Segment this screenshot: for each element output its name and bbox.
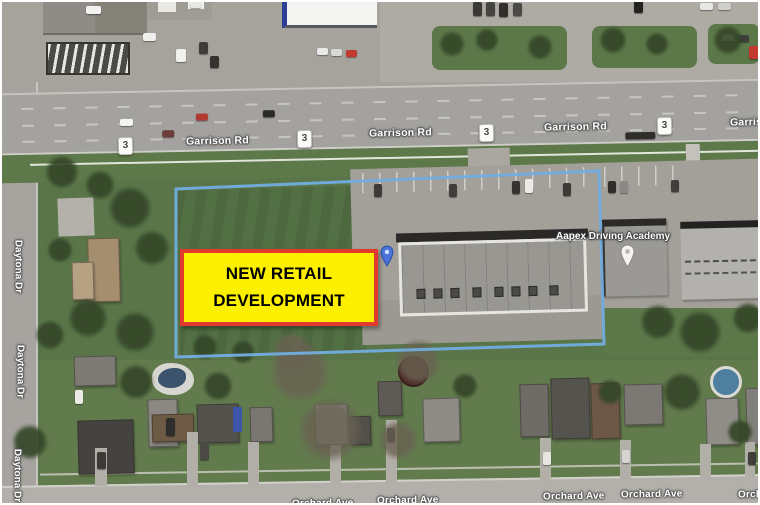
driveway bbox=[700, 444, 711, 478]
car bbox=[317, 48, 328, 55]
car bbox=[346, 50, 357, 57]
daytona-dr-label: Daytona Dr bbox=[12, 446, 23, 505]
house-roof bbox=[72, 262, 95, 301]
car bbox=[162, 130, 174, 137]
pool-water bbox=[158, 368, 186, 388]
garrison-rd-label: Garrison Rd bbox=[186, 134, 249, 147]
car bbox=[608, 181, 616, 193]
rooftop-unit bbox=[528, 286, 537, 296]
tree bbox=[727, 419, 753, 445]
building-roof bbox=[95, 0, 147, 33]
car bbox=[75, 390, 83, 404]
car bbox=[199, 42, 208, 54]
house-roof bbox=[250, 407, 274, 443]
car bbox=[210, 56, 219, 68]
tree bbox=[68, 298, 108, 338]
car bbox=[263, 110, 275, 117]
tree bbox=[134, 230, 170, 266]
house-roof bbox=[422, 398, 460, 443]
tree bbox=[645, 32, 669, 56]
car bbox=[143, 33, 156, 41]
tree-bare bbox=[272, 332, 312, 372]
house-roof bbox=[74, 355, 117, 386]
lane-marking bbox=[0, 111, 760, 128]
tree bbox=[114, 311, 156, 353]
orchard-ave-label: Orchard Ave bbox=[292, 498, 354, 505]
pool-round bbox=[710, 366, 742, 398]
tree bbox=[452, 373, 478, 399]
building-roof-surface bbox=[398, 238, 588, 317]
car bbox=[563, 183, 571, 196]
house-roof bbox=[519, 384, 549, 438]
car bbox=[86, 6, 101, 14]
orchard-ave-label: Orchard Ave bbox=[377, 495, 439, 505]
tree-bare bbox=[297, 397, 363, 463]
car bbox=[190, 1, 201, 8]
rooftop-unit bbox=[494, 287, 503, 297]
sidewalk-line bbox=[40, 462, 760, 475]
tree bbox=[640, 304, 676, 340]
car bbox=[331, 49, 342, 56]
tree bbox=[475, 28, 499, 52]
tree bbox=[118, 364, 154, 400]
tree-bare bbox=[395, 339, 441, 385]
car bbox=[200, 444, 209, 460]
new-retail-development-box: NEW RETAIL DEVELOPMENT bbox=[180, 249, 378, 326]
building-east-roof bbox=[680, 220, 760, 300]
car bbox=[97, 452, 106, 469]
building-roof-blue-trim bbox=[282, 0, 377, 28]
car bbox=[748, 452, 756, 465]
car bbox=[700, 3, 713, 10]
tree bbox=[192, 334, 218, 360]
truck bbox=[625, 132, 655, 140]
rooftop-unit bbox=[450, 288, 459, 298]
car bbox=[499, 3, 508, 17]
orchard-ave-label: Orchard Ave bbox=[543, 491, 605, 503]
roof-seam bbox=[685, 271, 756, 274]
bus-canopy-roof bbox=[46, 42, 130, 75]
tree bbox=[45, 155, 79, 189]
car bbox=[120, 119, 133, 126]
garrison-rd-label: Garrison Rd bbox=[730, 115, 760, 128]
house-roof bbox=[550, 378, 591, 440]
route-3-shield: 3 bbox=[479, 124, 494, 142]
car bbox=[718, 3, 731, 10]
car bbox=[196, 113, 208, 120]
route-3-shield: 3 bbox=[118, 137, 133, 155]
pool-deck bbox=[152, 363, 194, 395]
tree bbox=[35, 320, 65, 350]
car bbox=[176, 49, 186, 62]
tree bbox=[108, 186, 152, 230]
roof-seam bbox=[685, 259, 756, 262]
orchard-ave-label: Orchard Ave bbox=[738, 489, 760, 501]
daytona-dr-label: Daytona Dr bbox=[15, 342, 26, 402]
car bbox=[512, 181, 520, 194]
rooftop-unit bbox=[511, 286, 520, 296]
rooftop-unit bbox=[433, 288, 442, 298]
satellite-map: Garrison Rd Garrison Rd Garrison Rd Garr… bbox=[0, 0, 760, 505]
annotation-line2: DEVELOPMENT bbox=[213, 291, 345, 311]
route-3-shield: 3 bbox=[657, 117, 672, 135]
house-roof bbox=[623, 383, 663, 425]
car bbox=[671, 180, 679, 192]
tree-bare bbox=[378, 420, 418, 460]
car bbox=[634, 0, 643, 13]
car bbox=[166, 418, 175, 436]
annotation-line1: NEW RETAIL bbox=[226, 264, 333, 284]
rooftop-unit bbox=[416, 289, 425, 299]
lane-marking bbox=[0, 94, 760, 111]
route-3-shield: 3 bbox=[297, 130, 312, 148]
tree bbox=[231, 340, 255, 364]
house-roof bbox=[378, 381, 403, 417]
building-main-roof bbox=[396, 229, 590, 320]
rooftop-unit bbox=[549, 285, 558, 295]
tree bbox=[597, 379, 623, 405]
blue-tarp bbox=[233, 407, 242, 432]
garrison-rd-label: Garrison Rd bbox=[369, 126, 432, 139]
car bbox=[374, 184, 382, 197]
car bbox=[473, 2, 482, 16]
car bbox=[620, 181, 628, 193]
car bbox=[513, 3, 522, 16]
car bbox=[486, 2, 495, 16]
poi-label-aapex: Aapex Driving Academy bbox=[556, 231, 670, 242]
rooftop-unit bbox=[158, 2, 176, 12]
car bbox=[525, 179, 533, 193]
driveway bbox=[248, 442, 259, 486]
car bbox=[449, 184, 457, 197]
driveway bbox=[57, 197, 94, 236]
garrison-rd-label: Garrison Rd bbox=[544, 120, 607, 133]
tree bbox=[527, 34, 553, 60]
rooftop-unit bbox=[472, 287, 481, 297]
car bbox=[622, 450, 630, 463]
tree bbox=[662, 372, 702, 412]
tree bbox=[713, 25, 743, 55]
tree bbox=[47, 237, 73, 263]
tree bbox=[203, 371, 233, 401]
car bbox=[543, 452, 551, 465]
car bbox=[749, 46, 759, 59]
driveway bbox=[187, 432, 198, 486]
orchard-ave-label: Orchard Ave bbox=[621, 489, 683, 501]
tree bbox=[678, 310, 722, 354]
daytona-dr-label: Daytona Dr bbox=[13, 237, 24, 297]
tree bbox=[599, 26, 627, 54]
tree bbox=[439, 31, 465, 57]
tree bbox=[732, 302, 760, 334]
